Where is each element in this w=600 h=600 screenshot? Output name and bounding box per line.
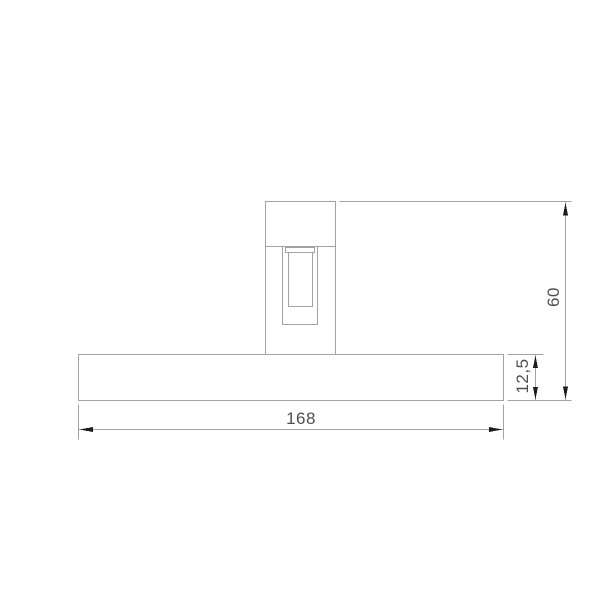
width-arrow-left-icon <box>80 427 94 432</box>
thickness-dimension-label: 12,5 <box>513 358 532 393</box>
width-arrow-right-icon <box>489 427 503 432</box>
thickness-arrow-top-icon <box>533 356 538 369</box>
fixture-lens-tube <box>289 253 313 307</box>
height-dimension-label: 60 <box>544 287 563 307</box>
fixture-base-bar <box>79 355 504 401</box>
width-dimension-label: 168 <box>286 409 316 428</box>
height-arrow-top-icon <box>563 203 568 216</box>
height-arrow-bottom-icon <box>563 387 568 400</box>
drawing-canvas: 168 60 12,5 <box>0 0 600 600</box>
thickness-arrow-bottom-icon <box>533 387 538 400</box>
fixture-lens-cap <box>286 248 315 253</box>
technical-drawing: 168 60 12,5 <box>0 0 600 600</box>
